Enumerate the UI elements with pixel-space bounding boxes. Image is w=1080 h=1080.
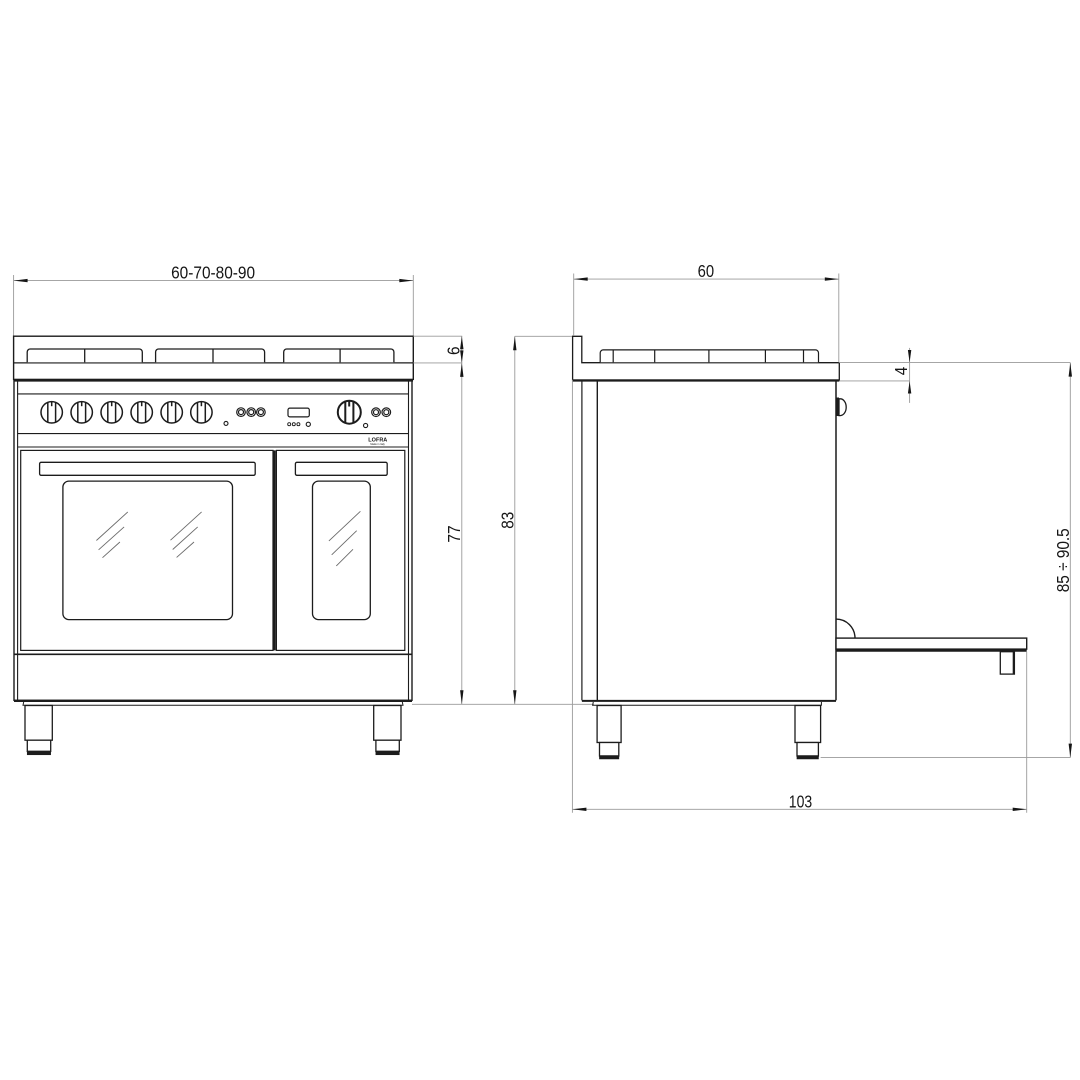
svg-text:4: 4 bbox=[891, 367, 911, 376]
svg-text:85 ÷ 90.5: 85 ÷ 90.5 bbox=[1053, 528, 1073, 592]
svg-text:83: 83 bbox=[498, 512, 518, 529]
svg-text:Made in Italy: Made in Italy bbox=[370, 442, 385, 446]
svg-text:103: 103 bbox=[789, 792, 812, 812]
svg-text:60-70-80-90: 60-70-80-90 bbox=[171, 263, 255, 283]
svg-text:60: 60 bbox=[698, 261, 715, 281]
svg-text:77: 77 bbox=[444, 525, 464, 542]
svg-text:6: 6 bbox=[443, 346, 463, 355]
